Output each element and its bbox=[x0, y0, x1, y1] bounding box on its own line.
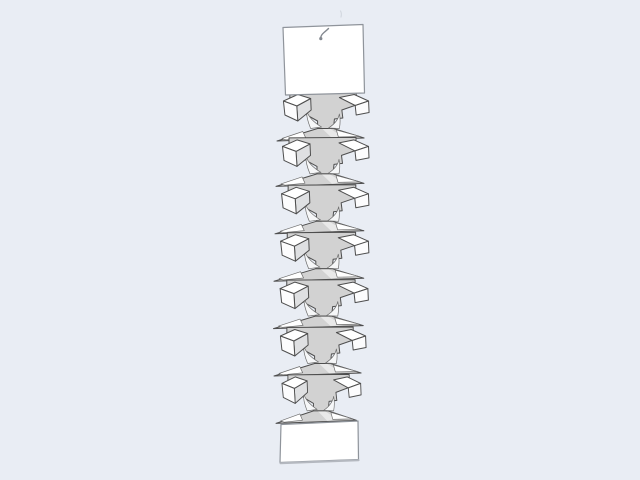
fold-module-3 bbox=[274, 232, 369, 281]
render-svg bbox=[0, 0, 640, 480]
fold-module-4 bbox=[274, 280, 369, 329]
hook-tip bbox=[319, 37, 322, 40]
top-panel bbox=[283, 25, 365, 96]
faint-string-mark bbox=[341, 11, 342, 17]
fold-module-1 bbox=[276, 137, 369, 186]
fold-module-0 bbox=[277, 92, 369, 141]
bottom-panel bbox=[280, 421, 359, 463]
fold-module-6 bbox=[276, 374, 361, 423]
folded-column bbox=[274, 92, 370, 423]
fold-module-2 bbox=[275, 185, 369, 234]
fold-module-5 bbox=[274, 327, 366, 376]
render-canvas bbox=[0, 0, 640, 480]
